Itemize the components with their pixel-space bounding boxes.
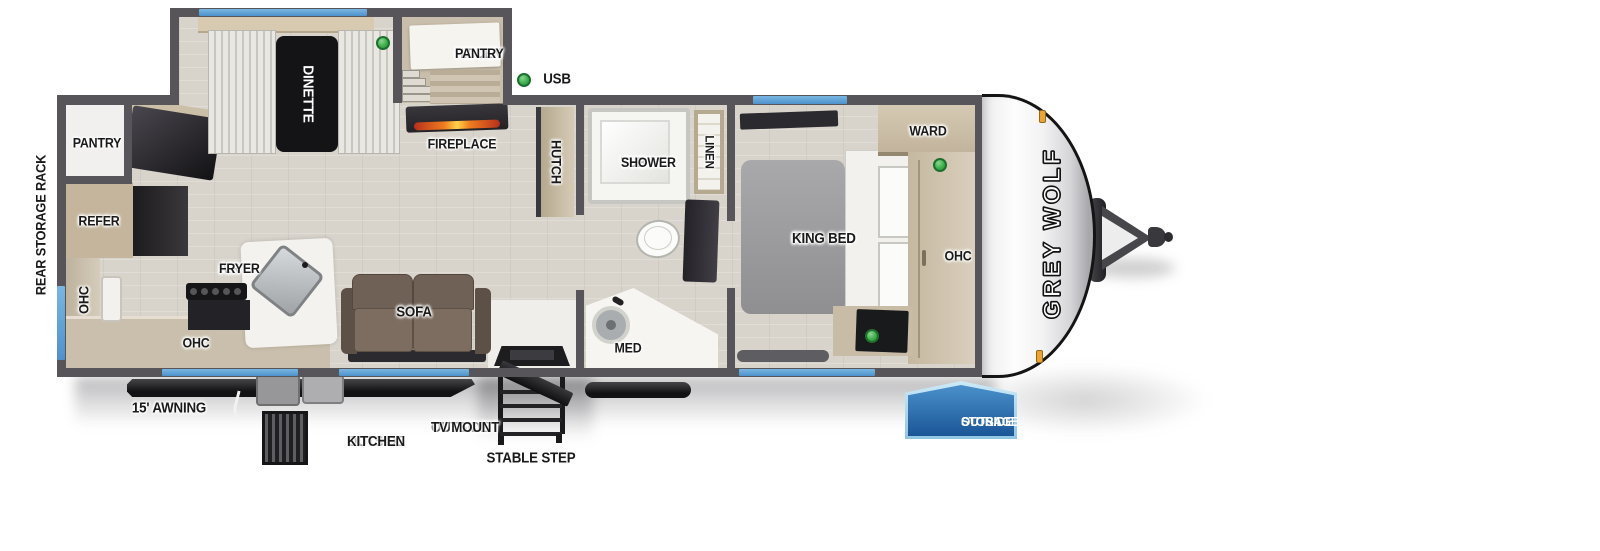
shower-pan (600, 120, 670, 184)
bath-sink-drain (606, 320, 616, 330)
bed-line2: KING BED (792, 232, 856, 247)
outside-kitchen-box (302, 374, 344, 404)
rear-window (57, 286, 65, 360)
stable-step-foot (556, 434, 562, 443)
kitchen-bottom-window (162, 369, 298, 376)
hidden-pantry-step (402, 78, 426, 86)
dinette-bench-right (338, 30, 400, 154)
sofa-arm-right (475, 288, 491, 354)
slideout-right-wall (503, 8, 512, 103)
floorplan-canvas: REAR STORAGE RACK PANTRY REFER OHC AIR F… (0, 0, 1600, 551)
hitch-coupler-tip (1164, 232, 1173, 242)
pantry-bottom-wall (57, 176, 132, 184)
stable-step-foot (498, 436, 504, 445)
rear-storage-rack-label: REAR STORAGE RACK (34, 155, 49, 295)
cooktop-burner (190, 288, 197, 295)
outside-kitchen-grill-icon (262, 411, 308, 465)
stable-step-rung (500, 418, 562, 422)
dinette-label: DINETTE (300, 65, 315, 123)
hidden-pantry-step (402, 70, 420, 78)
pantry-label: PANTRY (73, 136, 122, 151)
bed-storage-box (878, 242, 912, 308)
outside-kitchen-line2: KITCHEN (347, 434, 405, 450)
linen-label: LINEN (702, 135, 717, 168)
faucet (302, 262, 308, 268)
bath-vanity-cabinet (683, 199, 720, 282)
nightstand-top-item (855, 309, 908, 353)
fireplace-label: FIREPLACE (428, 137, 497, 152)
awning-bar (127, 379, 475, 397)
bed-storage-box (878, 166, 912, 238)
outside-kitchen-box (256, 374, 300, 406)
sofa-label: SOFA (396, 306, 432, 321)
cooktop-burner (234, 288, 241, 295)
green-usb-marker-icon (517, 73, 531, 87)
cooktop-burner (201, 288, 208, 295)
green-usb-marker-icon (865, 329, 879, 343)
bath-left-wall-upper (576, 103, 584, 215)
sofa-bottom-window (339, 369, 469, 376)
top-wall-left (57, 95, 179, 105)
tub-shower-line2: SHOWER (621, 155, 676, 170)
toilet-seat (644, 226, 672, 250)
range-oven (188, 300, 250, 330)
refer-label: REFER (78, 214, 119, 229)
awning-bar-right (585, 382, 691, 398)
hidden-pantry-step (402, 86, 432, 94)
cabinet-door (101, 276, 122, 322)
ohc-kitchen-label: OHC (182, 336, 209, 351)
bedroom-wall-lower (727, 288, 735, 368)
dinette-bench-left (208, 30, 276, 154)
hidden-pantry-shelves (430, 70, 500, 104)
green-usb-marker-icon (376, 36, 390, 50)
stable-step-rung (500, 404, 562, 408)
wardrobe-seam (918, 160, 920, 358)
cooktop-burner (223, 288, 230, 295)
bedroom-top-window (753, 96, 847, 104)
stable-step-rung (500, 432, 562, 436)
outside-tv-line2: TV MOUNT (431, 420, 499, 436)
stable-step-label: STABLE STEP (487, 452, 576, 467)
air-fryer-line2: FRYER (219, 261, 260, 276)
pantry-right-wall (124, 103, 132, 183)
bath-left-wall-lower (576, 290, 584, 368)
slideout-left-wall (170, 8, 179, 103)
usb-label: USB (543, 73, 571, 88)
bedroom-wall-upper (727, 103, 735, 221)
bedroom-tv (740, 110, 838, 129)
ohc-bedroom-label: OHC (944, 249, 971, 264)
brand-logo: GREY WOLF (1039, 147, 1067, 319)
entry-mat-inner (510, 350, 554, 360)
slideout-divider-wall (393, 15, 402, 103)
bedroom-bottom-window (739, 369, 875, 376)
bed-bench (737, 350, 829, 362)
ward-label: WARD (909, 124, 946, 139)
clearance-marker-bottom (1036, 350, 1043, 363)
wardrobe-handle (922, 250, 926, 266)
cooktop-burner (212, 288, 219, 295)
refer-front (133, 186, 188, 256)
slideout-window (199, 9, 367, 16)
outside-storage-line2: STORAGE (961, 414, 1019, 430)
ohc-rear-label: OHC (77, 286, 92, 314)
clearance-marker-top (1039, 110, 1046, 123)
hidden-pantry-line2: PANTRY (455, 46, 504, 61)
med-label: MED (614, 341, 641, 356)
awning-label: 15' AWNING (132, 402, 206, 417)
hutch-label: HUTCH (549, 140, 564, 184)
green-usb-marker-icon (933, 158, 947, 172)
